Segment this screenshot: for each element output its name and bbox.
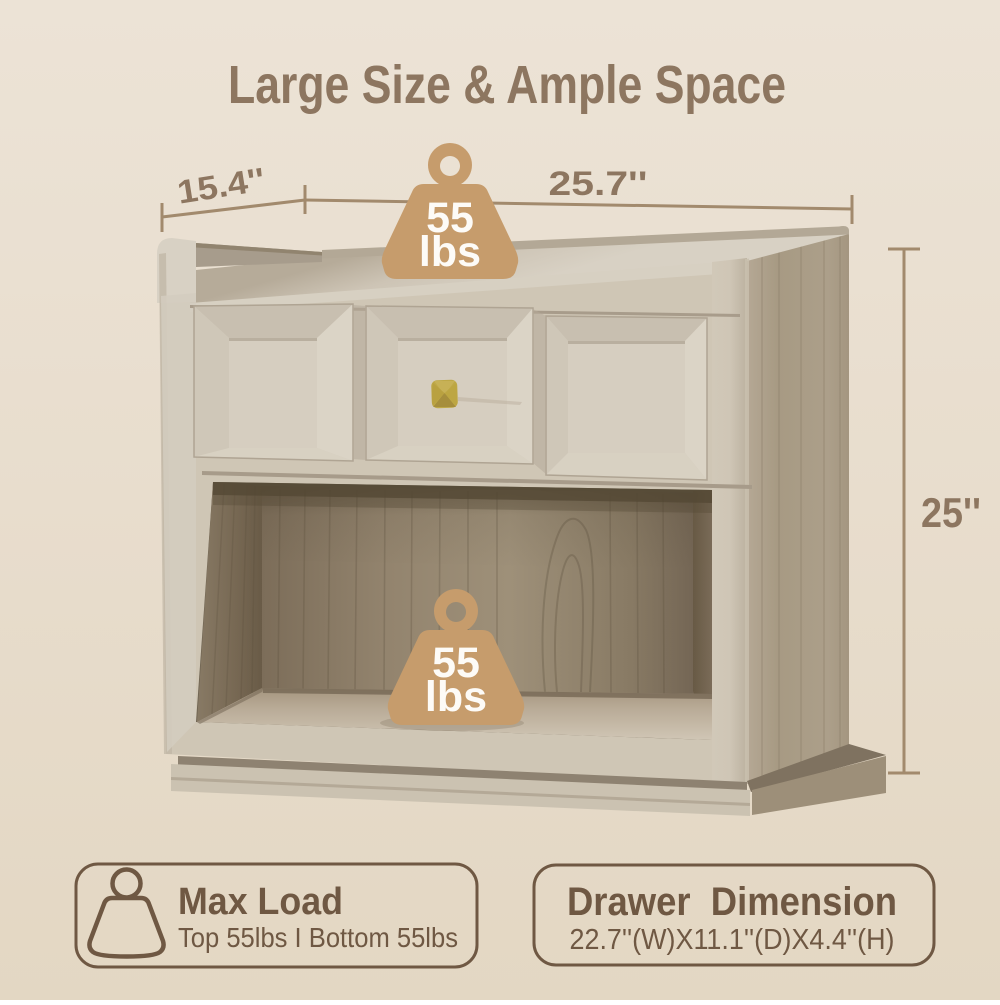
svg-text:25.7'': 25.7'' [549,165,648,203]
svg-text:lbs: lbs [419,228,481,276]
svg-text:Drawer Dimension: Drawer Dimension [567,880,897,924]
svg-text:22.7''(W)X11.1''(D)X4.4''(H): 22.7''(W)X11.1''(D)X4.4''(H) [570,924,895,956]
svg-text:Top 55lbs I Bottom 55lbs: Top 55lbs I Bottom 55lbs [178,922,458,953]
svg-text:Large Size & Ample Space: Large Size & Ample Space [228,55,786,115]
svg-text:25'': 25'' [921,489,981,536]
svg-text:lbs: lbs [425,673,487,721]
svg-text:Max Load: Max Load [178,881,343,923]
